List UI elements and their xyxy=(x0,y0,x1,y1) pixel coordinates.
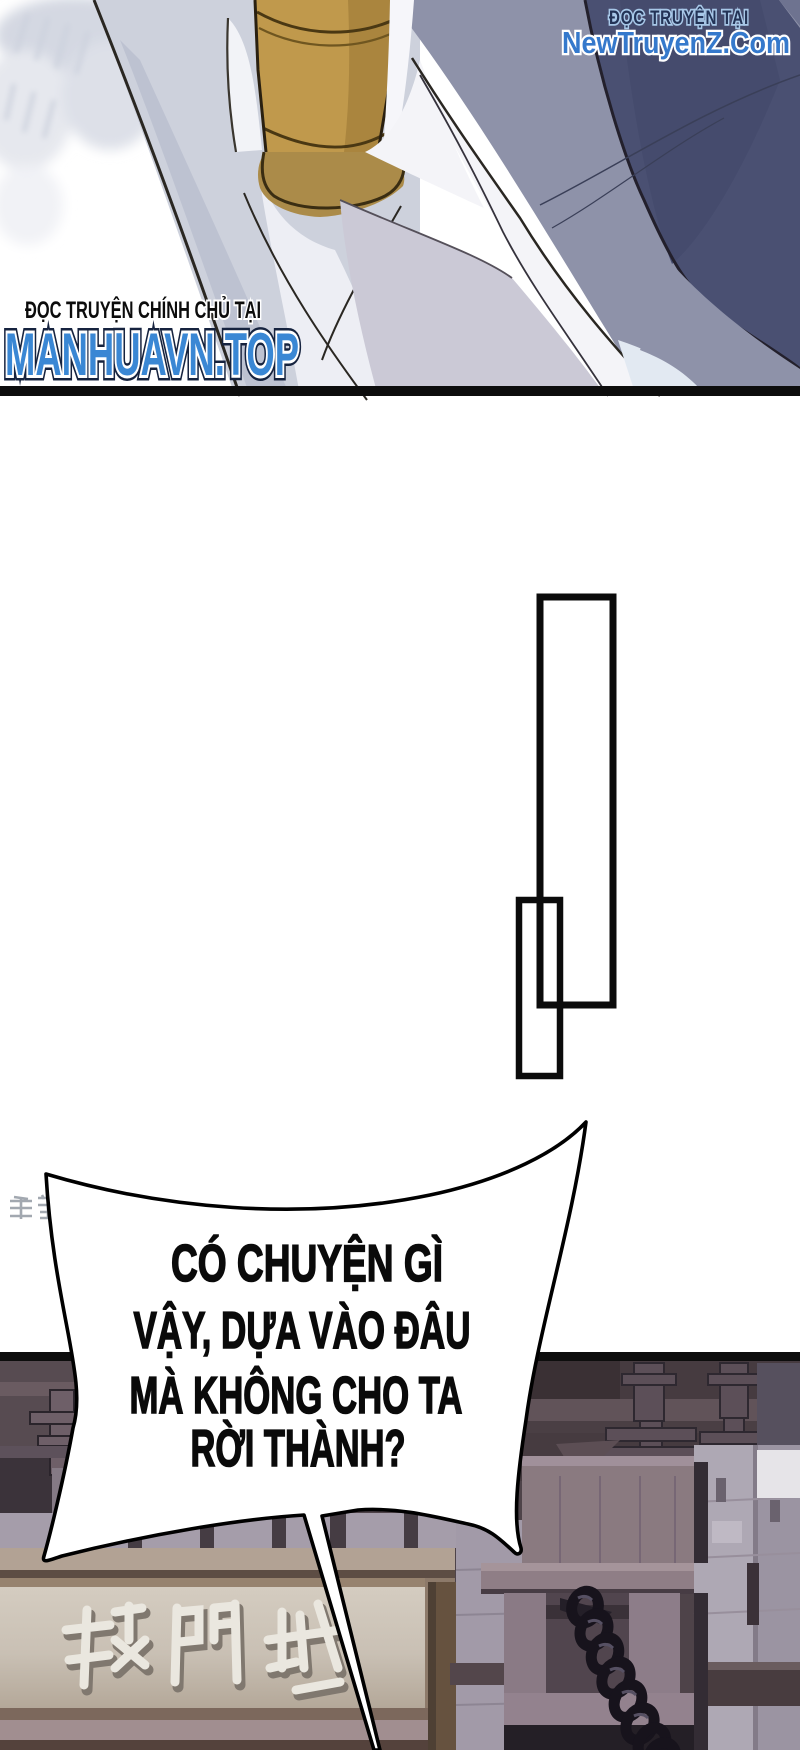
svg-text:MÀ KHÔNG CHO TA: MÀ KHÔNG CHO TA xyxy=(130,1366,463,1425)
svg-text:RỜI THÀNH?: RỜI THÀNH? xyxy=(191,1420,406,1478)
svg-text:MANHUAVN.TOP: MANHUAVN.TOP xyxy=(5,321,299,388)
svg-text:CÓ CHUYỆN GÌ: CÓ CHUYỆN GÌ xyxy=(171,1234,443,1293)
svg-text:ĐỌC TRUYỆN CHÍNH CHỦ TẠI: ĐỌC TRUYỆN CHÍNH CHỦ TẠI xyxy=(25,295,261,324)
svg-text:VẬY, DỰA VÀO ĐÂU: VẬY, DỰA VÀO ĐÂU xyxy=(134,1301,471,1360)
svg-text:NewTruyenZ.Com: NewTruyenZ.Com xyxy=(562,25,790,60)
